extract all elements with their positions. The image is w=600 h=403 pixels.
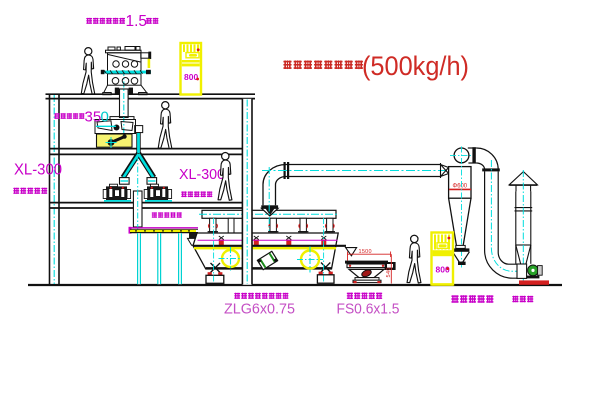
svg-text:Φ600: Φ600 xyxy=(453,183,468,190)
svg-text:XL-300: XL-300 xyxy=(14,162,62,179)
svg-text:(500kg/h): (500kg/h) xyxy=(362,51,469,81)
svg-text:540: 540 xyxy=(386,268,392,278)
svg-text:ZLG6x0.75: ZLG6x0.75 xyxy=(224,302,295,318)
svg-text:1.5: 1.5 xyxy=(126,13,148,30)
svg-text:FS0.6x1.5: FS0.6x1.5 xyxy=(337,302,400,318)
svg-text:35: 35 xyxy=(85,109,102,126)
svg-text:0: 0 xyxy=(101,109,109,126)
svg-text:XL-300: XL-300 xyxy=(179,167,225,183)
svg-text:1500: 1500 xyxy=(359,249,372,255)
svg-text:800: 800 xyxy=(184,72,198,82)
